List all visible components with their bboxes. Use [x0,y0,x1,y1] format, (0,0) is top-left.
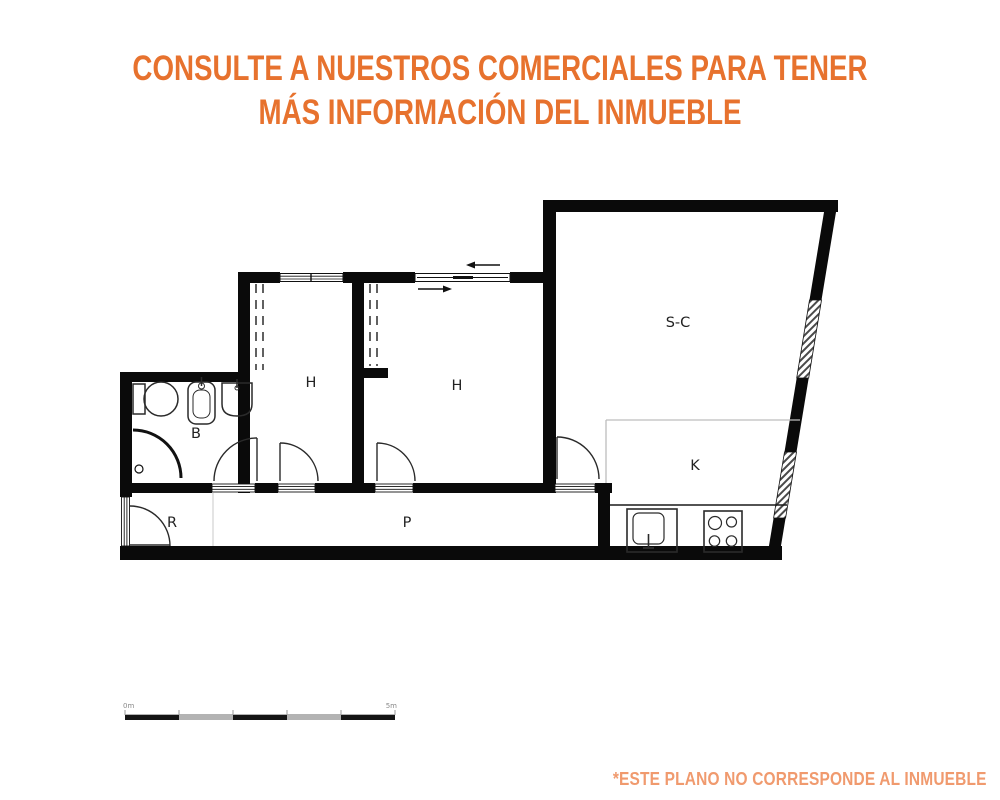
toilet-icon [133,382,178,416]
scale-bar: 0m 5m [123,702,397,720]
bedroom2-sliding-door-icon [415,274,510,282]
room-label-bathroom: B [191,426,201,442]
washbasin-icon [188,377,215,424]
slide-arrow-right-icon [418,286,452,293]
wardrobe-bedroom2-icon [370,284,377,366]
corner-shower-icon [133,430,181,478]
kitchen-sink-icon [627,509,677,552]
room-label-corridor: P [403,515,412,531]
scale-end-label: 5m [386,702,397,710]
scale-start-label: 0m [123,702,134,710]
room-label-bedroom-2: H [452,378,463,394]
floorplan-svg: S-C H H B K R P 0m 5m [0,0,1000,800]
door-thresholds [122,484,596,546]
slide-arrow-left-icon [466,262,500,269]
room-label-bedroom-1: H [306,375,317,391]
bedroom1-window-icon [280,274,343,282]
room-label-living-dining: S-C [666,315,691,331]
hob-icon [704,511,742,552]
wardrobe-bedroom1-icon [256,284,263,370]
disclaimer-text: *ESTE PLANO NO CORRESPONDE AL INMUEBLE [613,769,987,790]
room-label-kitchen: K [690,458,700,474]
room-label-entry-hall: R [167,515,177,531]
walls [120,200,838,560]
